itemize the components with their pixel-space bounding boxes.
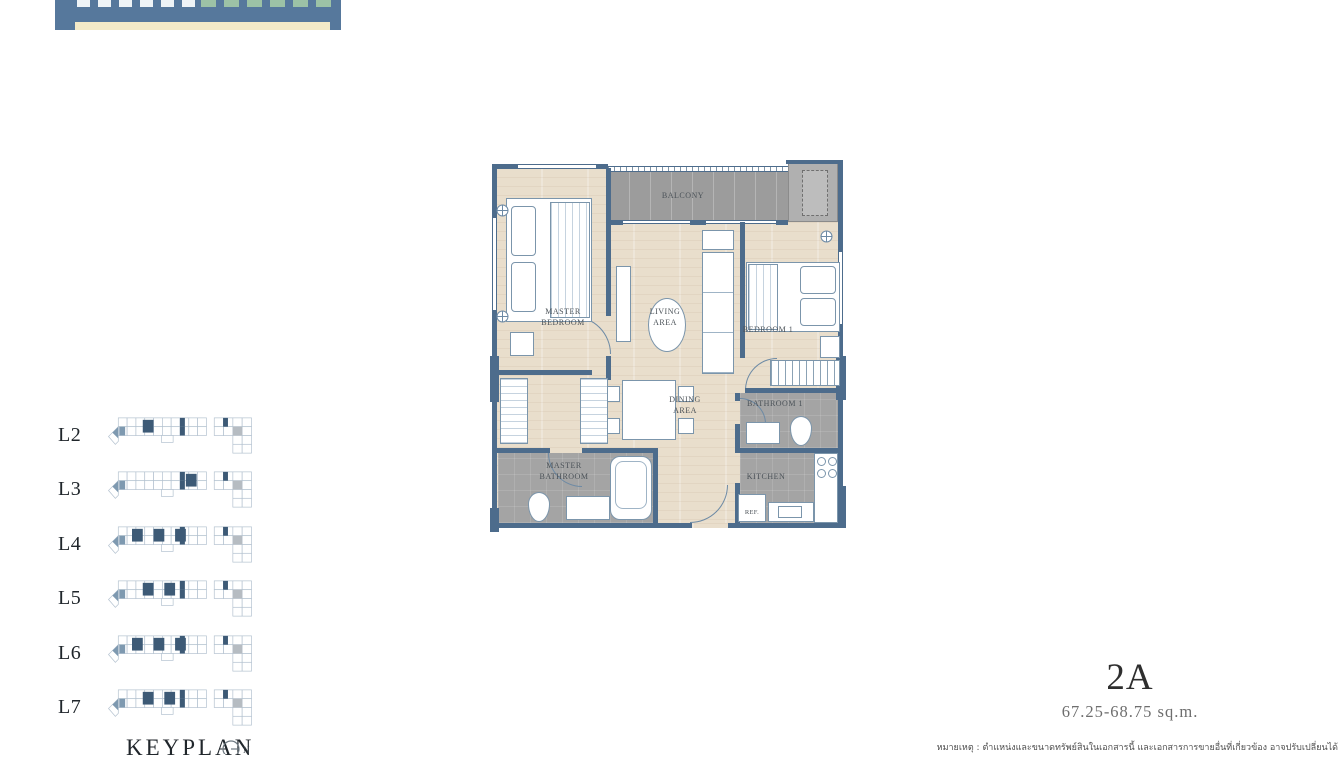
column [490,508,499,532]
room-label-bathroom1: BATHROOM 1 [740,398,810,409]
pillow [800,298,836,326]
room-label-living-area: LIVING AREA [643,306,687,328]
north-compass-icon: N [221,739,255,754]
tv-console [616,266,631,342]
keyplan-level-label: L6 [58,642,104,665]
keyplan-building-diagram [104,412,254,459]
duvet [550,202,590,318]
closet-wardrobe [500,378,528,444]
keyplan-row-l4: L4 [58,517,268,572]
keyplan-level-label: L2 [58,424,104,447]
keyplan-building-diagram [104,466,254,513]
wall [492,523,842,528]
brand-logo-underline [75,22,330,30]
keyplan-levels: L2L3L4L5L6L7 [58,408,268,735]
svg-text:N: N [243,745,250,754]
room-label-master-bedroom: MASTER BEDROOM [535,306,591,328]
wall [492,370,592,375]
keyplan-row-l2: L2 [58,408,268,463]
stove-burner [817,469,826,478]
sink [566,496,610,520]
side-table [702,230,734,250]
room-label-ref: REF. [734,507,770,518]
floor-plan: MASTER BEDROOM BALCONY LIVING AREA BEDRO… [490,160,852,532]
window [518,164,596,169]
room-label-master-bathroom: MASTER BATHROOM [532,460,596,482]
keyplan-level-label: L7 [58,696,104,719]
wall [690,220,706,225]
sink [746,422,780,444]
pillow [511,262,536,312]
window [492,218,497,310]
room-label-bedroom1: BEDROOM 1 [733,324,803,335]
unit-area-range: 67.25-68.75 sq.m. [1040,702,1220,722]
wall [492,448,550,453]
bathtub [610,456,652,520]
keyplan-row-l7: L7 [58,681,268,736]
ac-compressor [802,170,828,216]
keyplan-level-label: L3 [58,478,104,501]
wall [740,222,745,358]
keyplan-row-l3: L3 [58,463,268,518]
wall [776,220,788,225]
pillow [511,206,536,256]
closet-wardrobe [580,378,608,444]
brand-logo[interactable] [55,0,341,30]
chair [678,418,694,434]
balcony-railing [608,166,788,172]
wall [606,168,611,316]
wall [786,160,842,164]
keyplan-building-diagram [104,684,254,731]
keyplan-level-label: L5 [58,587,104,610]
unit-code: 2A [1040,658,1220,698]
kitchen-sink [778,506,802,518]
pillow [800,266,836,294]
room-label-balcony: BALCONY [648,190,718,201]
ceiling-fan-icon [496,204,509,217]
wall [582,448,658,453]
wall [653,453,658,523]
sofa [702,252,734,374]
wall [606,356,611,380]
stove-burner [828,457,837,466]
ceiling-fan-icon [496,310,509,323]
wardrobe [770,360,840,386]
keyplan-building-diagram [104,521,254,568]
stool [510,332,534,356]
page: { "brand": { "bar_color": "#56789c", "un… [0,0,1342,754]
ceiling-fan-icon [820,230,833,243]
headboard [748,264,778,330]
unit-info: 2A 67.25-68.75 sq.m. [1040,658,1220,722]
keyplan-building-diagram [104,575,254,622]
nightstand [820,336,840,358]
room-label-dining-area: DINING AREA [663,394,707,416]
wall [611,220,623,225]
column [490,356,499,402]
keyplan-level-label: L4 [58,533,104,556]
keyplan-building-diagram [104,630,254,677]
room-label-kitchen: KITCHEN [731,471,801,482]
entrance-opening [692,523,728,528]
disclaimer-text: หมายเหตุ : ตำแหน่งและขนาดทรัพย์สินในเอกส… [937,740,1338,754]
wall [745,388,843,393]
stove-burner [817,457,826,466]
brand-logo-partial-letters-left [77,0,195,7]
keyplan-row-l6: L6 [58,626,268,681]
keyplan-row-l5: L5 [58,572,268,627]
stove-burner [828,469,837,478]
brand-logo-partial-letters-right [201,0,331,7]
